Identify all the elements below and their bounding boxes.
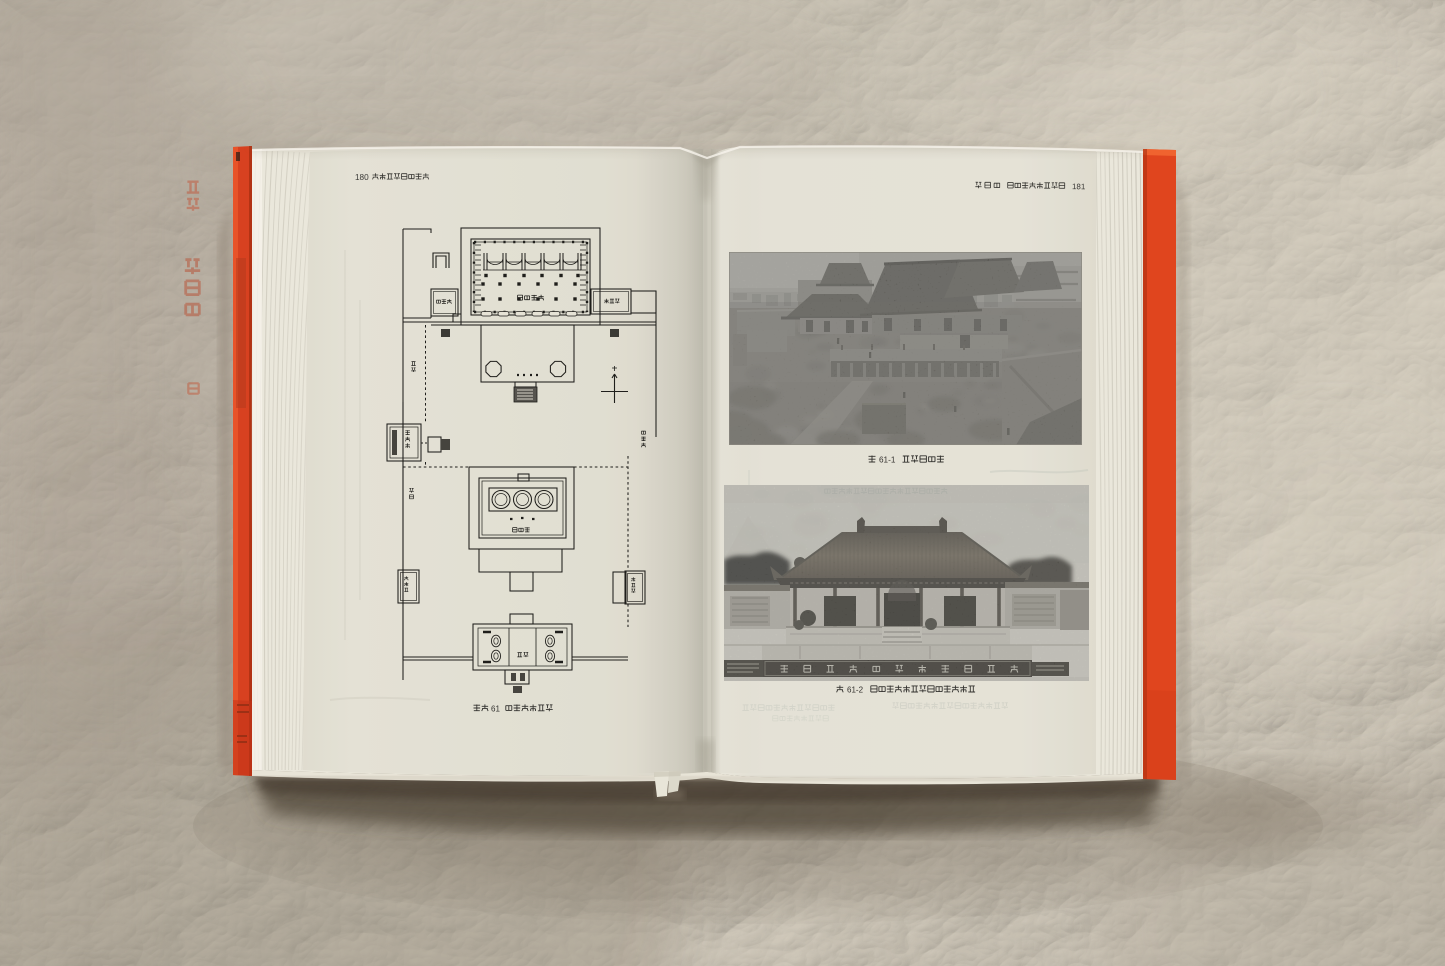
svg-text:61-2: 61-2: [847, 686, 864, 695]
svg-text:61: 61: [491, 705, 500, 714]
svg-text:181: 181: [1072, 182, 1086, 191]
svg-text:180: 180: [355, 173, 369, 182]
svg-text:61-1: 61-1: [879, 456, 896, 465]
